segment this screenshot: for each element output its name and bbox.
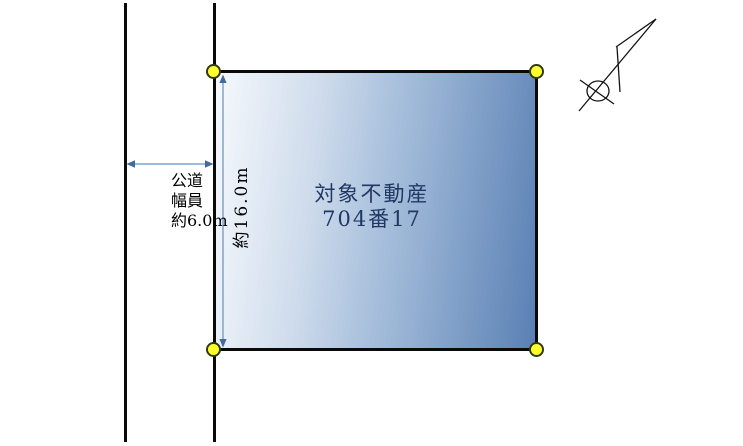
corner-marker-bottom-left [206,342,221,357]
corner-marker-top-left [206,64,221,79]
parcel-lot-number: 704番17 [277,207,467,232]
corner-marker-bottom-right [529,342,544,357]
parcel-title: 対象不動産 [277,182,467,207]
corner-marker-top-right [529,64,544,79]
parcel-depth-label: 約16.0m [227,147,247,267]
site-plan-diagram: 公道 幅員 約6.0m 対象不動産 704番17 約16.0m [0,0,743,446]
road-width-arrow [127,160,214,168]
road-edge-line-left [124,3,127,442]
parcel-label: 対象不動産 704番17 [277,182,467,232]
north-arrow-icon [579,19,656,111]
